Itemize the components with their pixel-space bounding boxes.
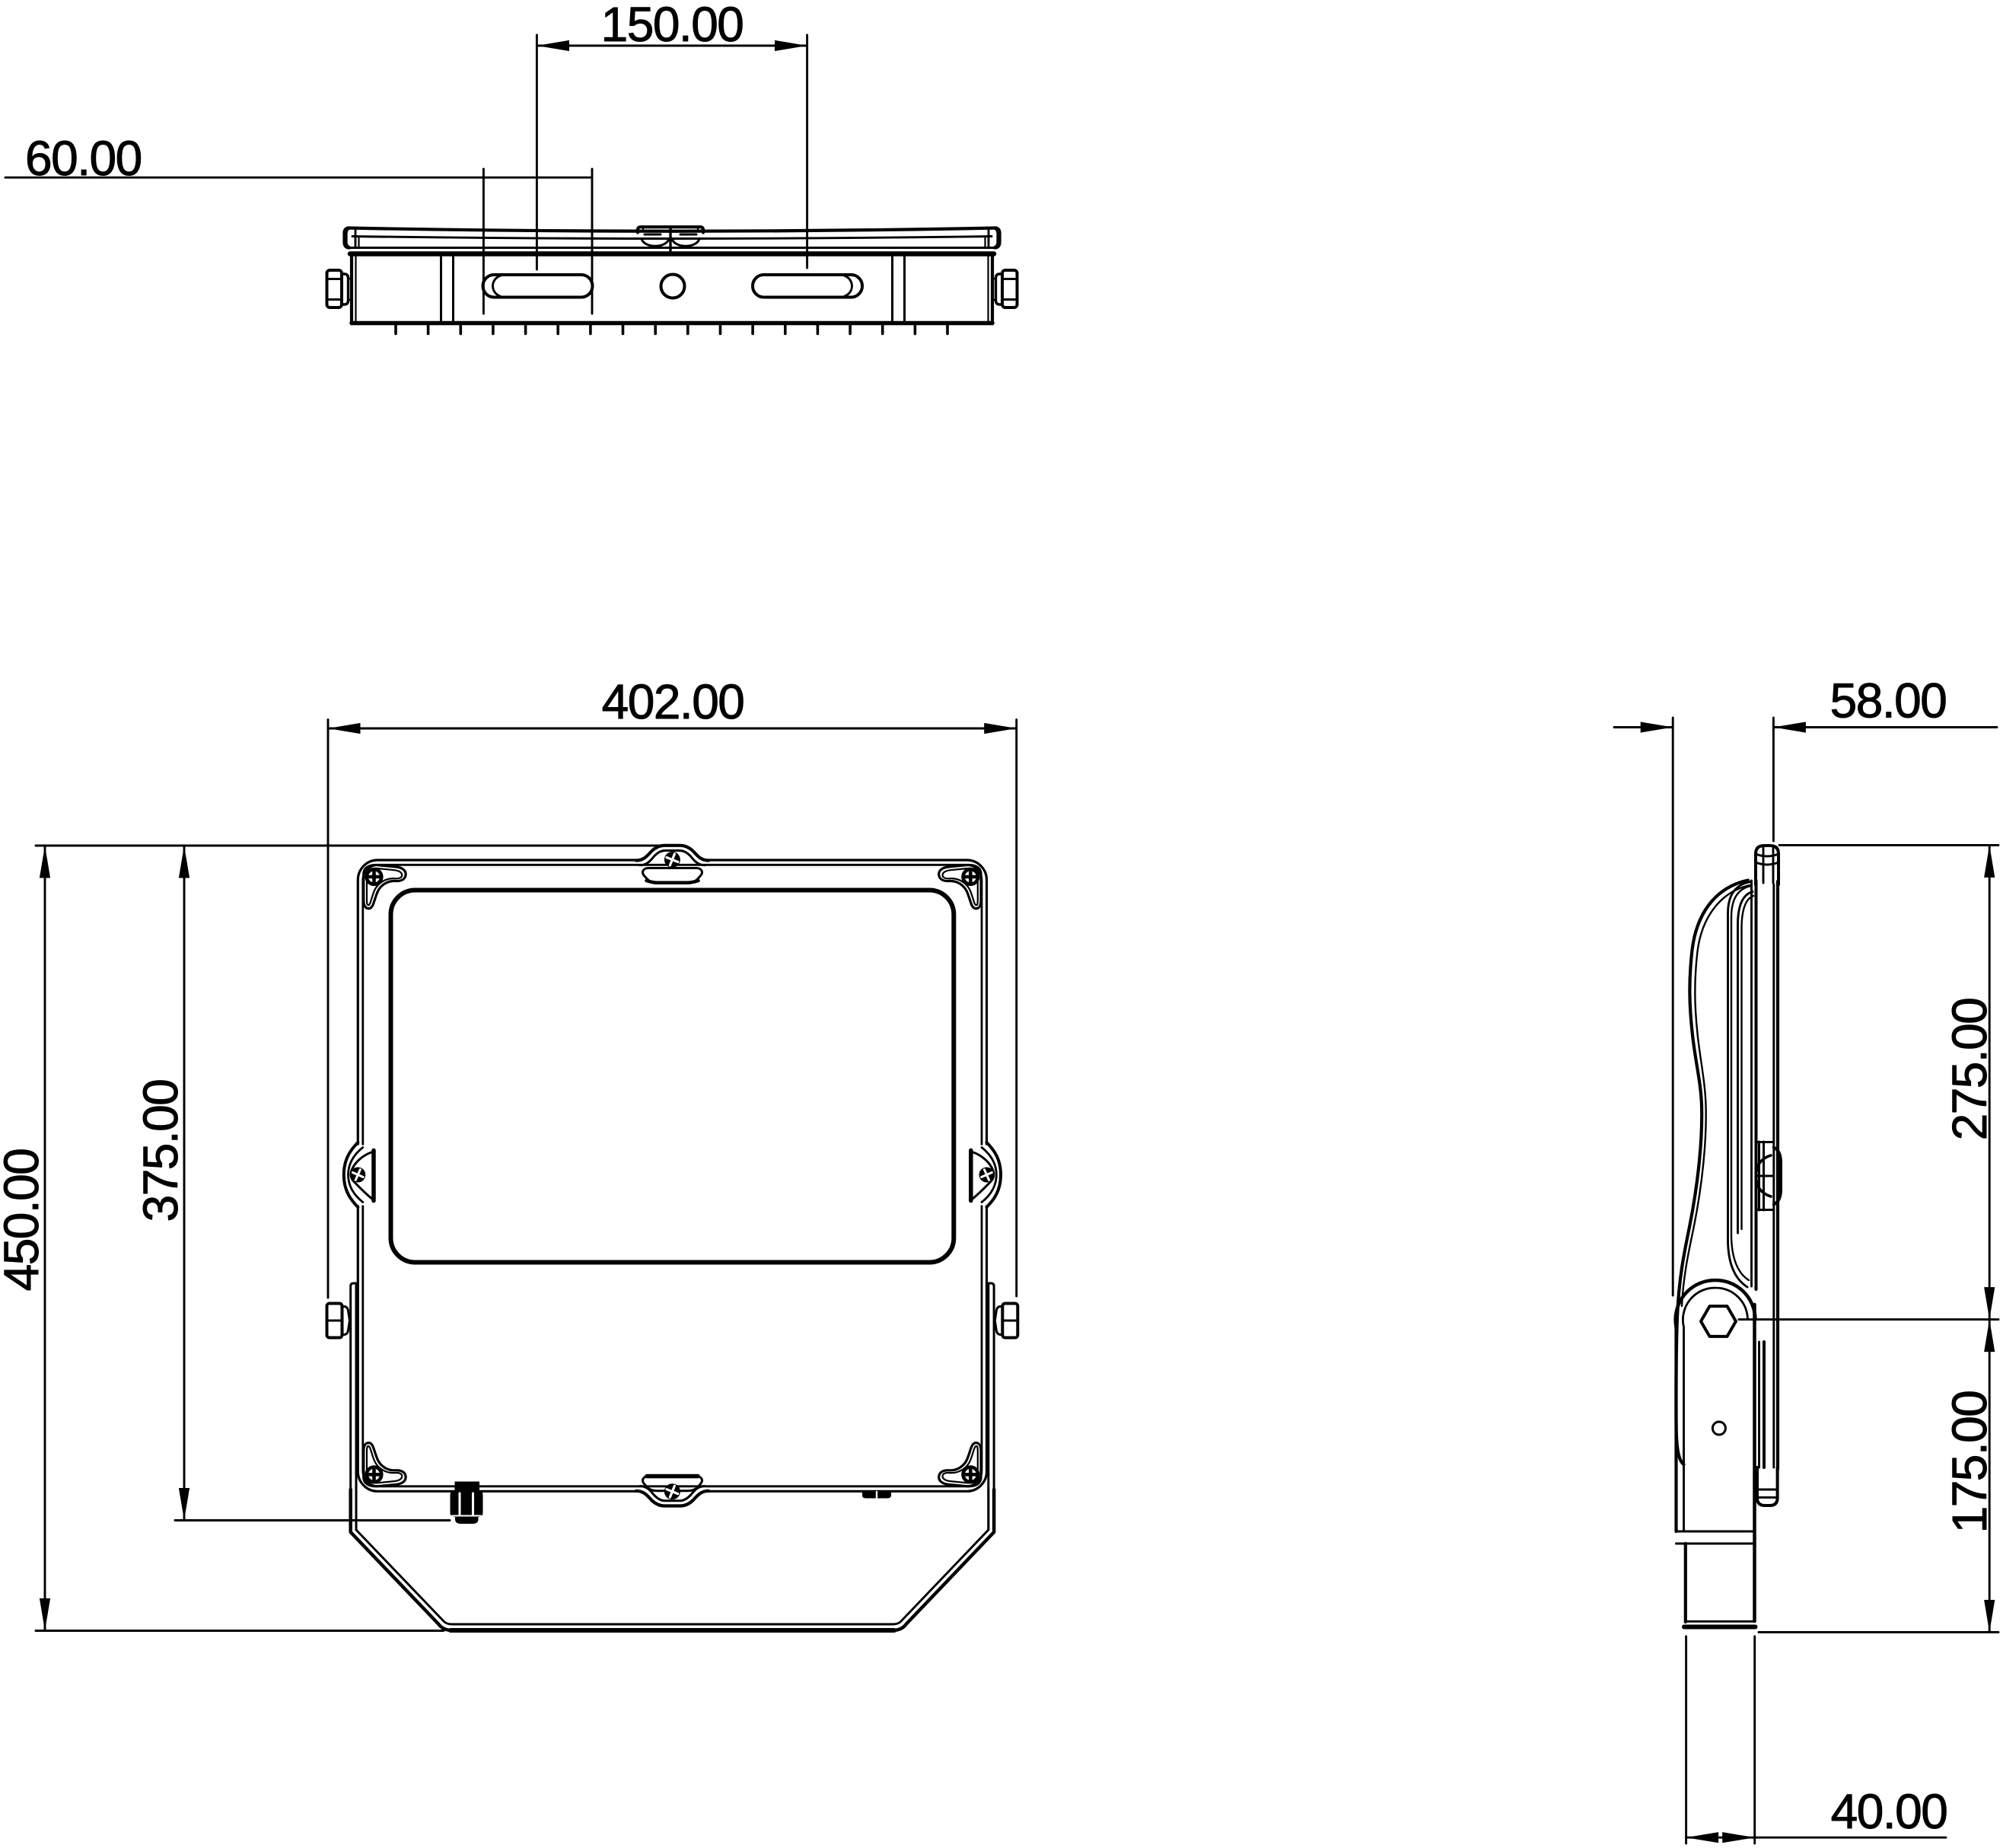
svg-text:60.00: 60.00 xyxy=(25,131,142,186)
svg-text:40.00: 40.00 xyxy=(1831,1784,1947,1839)
svg-text:375.00: 375.00 xyxy=(133,1080,188,1222)
svg-text:402.00: 402.00 xyxy=(602,674,744,729)
svg-text:450.00: 450.00 xyxy=(0,1149,49,1292)
svg-text:150.00: 150.00 xyxy=(601,0,744,52)
svg-text:275.00: 275.00 xyxy=(1942,999,1997,1141)
svg-text:58.00: 58.00 xyxy=(1830,674,1947,728)
svg-text:175.00: 175.00 xyxy=(1942,1391,1997,1534)
